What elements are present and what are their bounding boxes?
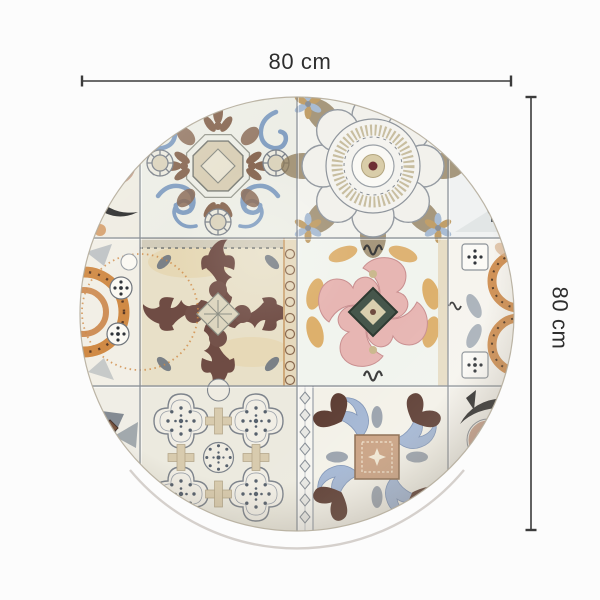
width-label: 80 cm (269, 49, 332, 74)
dimension-width (82, 76, 511, 87)
product-dimension-image: 80 cm 80 cm (0, 0, 600, 600)
rug (44, 74, 546, 545)
vignette-overlay (80, 97, 514, 531)
height-label: 80 cm (547, 287, 572, 350)
dimension-height (526, 97, 537, 530)
